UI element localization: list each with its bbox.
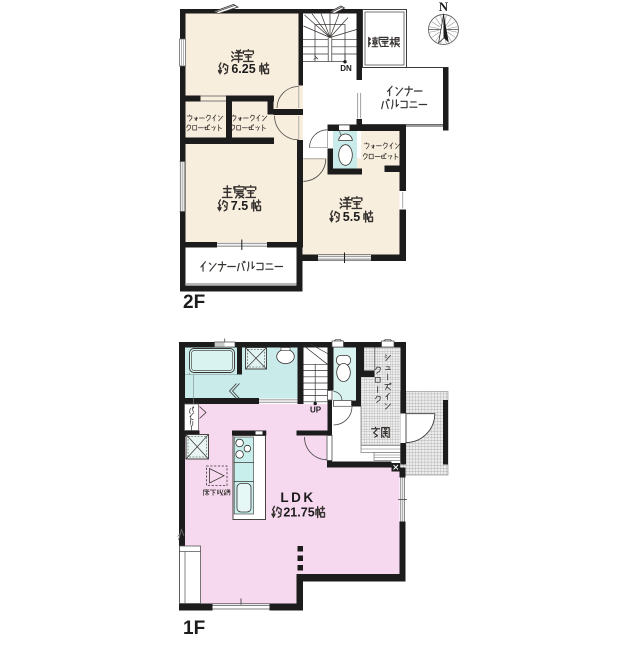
svg-text:N: N bbox=[439, 0, 449, 14]
svg-text:DN: DN bbox=[340, 64, 352, 73]
svg-text:7.5: 7.5 bbox=[231, 199, 248, 213]
svg-text:2F: 2F bbox=[183, 292, 205, 313]
svg-text:5.5: 5.5 bbox=[343, 210, 360, 224]
svg-text:UP: UP bbox=[310, 406, 322, 415]
svg-text:1F: 1F bbox=[183, 618, 205, 639]
svg-text:21.75: 21.75 bbox=[283, 506, 314, 520]
svg-text:LDK: LDK bbox=[280, 490, 315, 505]
svg-text:6.25: 6.25 bbox=[231, 62, 255, 76]
